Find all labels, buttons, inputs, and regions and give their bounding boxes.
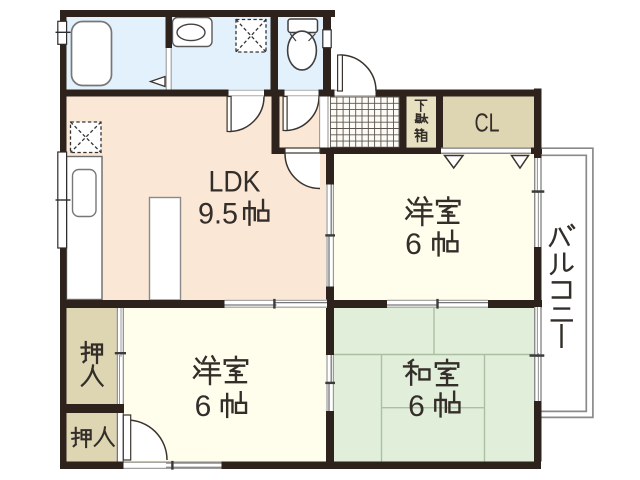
svg-text:6: 6 — [195, 390, 212, 423]
svg-text:6: 6 — [405, 228, 422, 261]
svg-text:LDK: LDK — [209, 166, 261, 199]
svg-text:9.5: 9.5 — [198, 197, 238, 230]
svg-text:CL: CL — [475, 108, 500, 138]
svg-text:6: 6 — [408, 390, 425, 423]
